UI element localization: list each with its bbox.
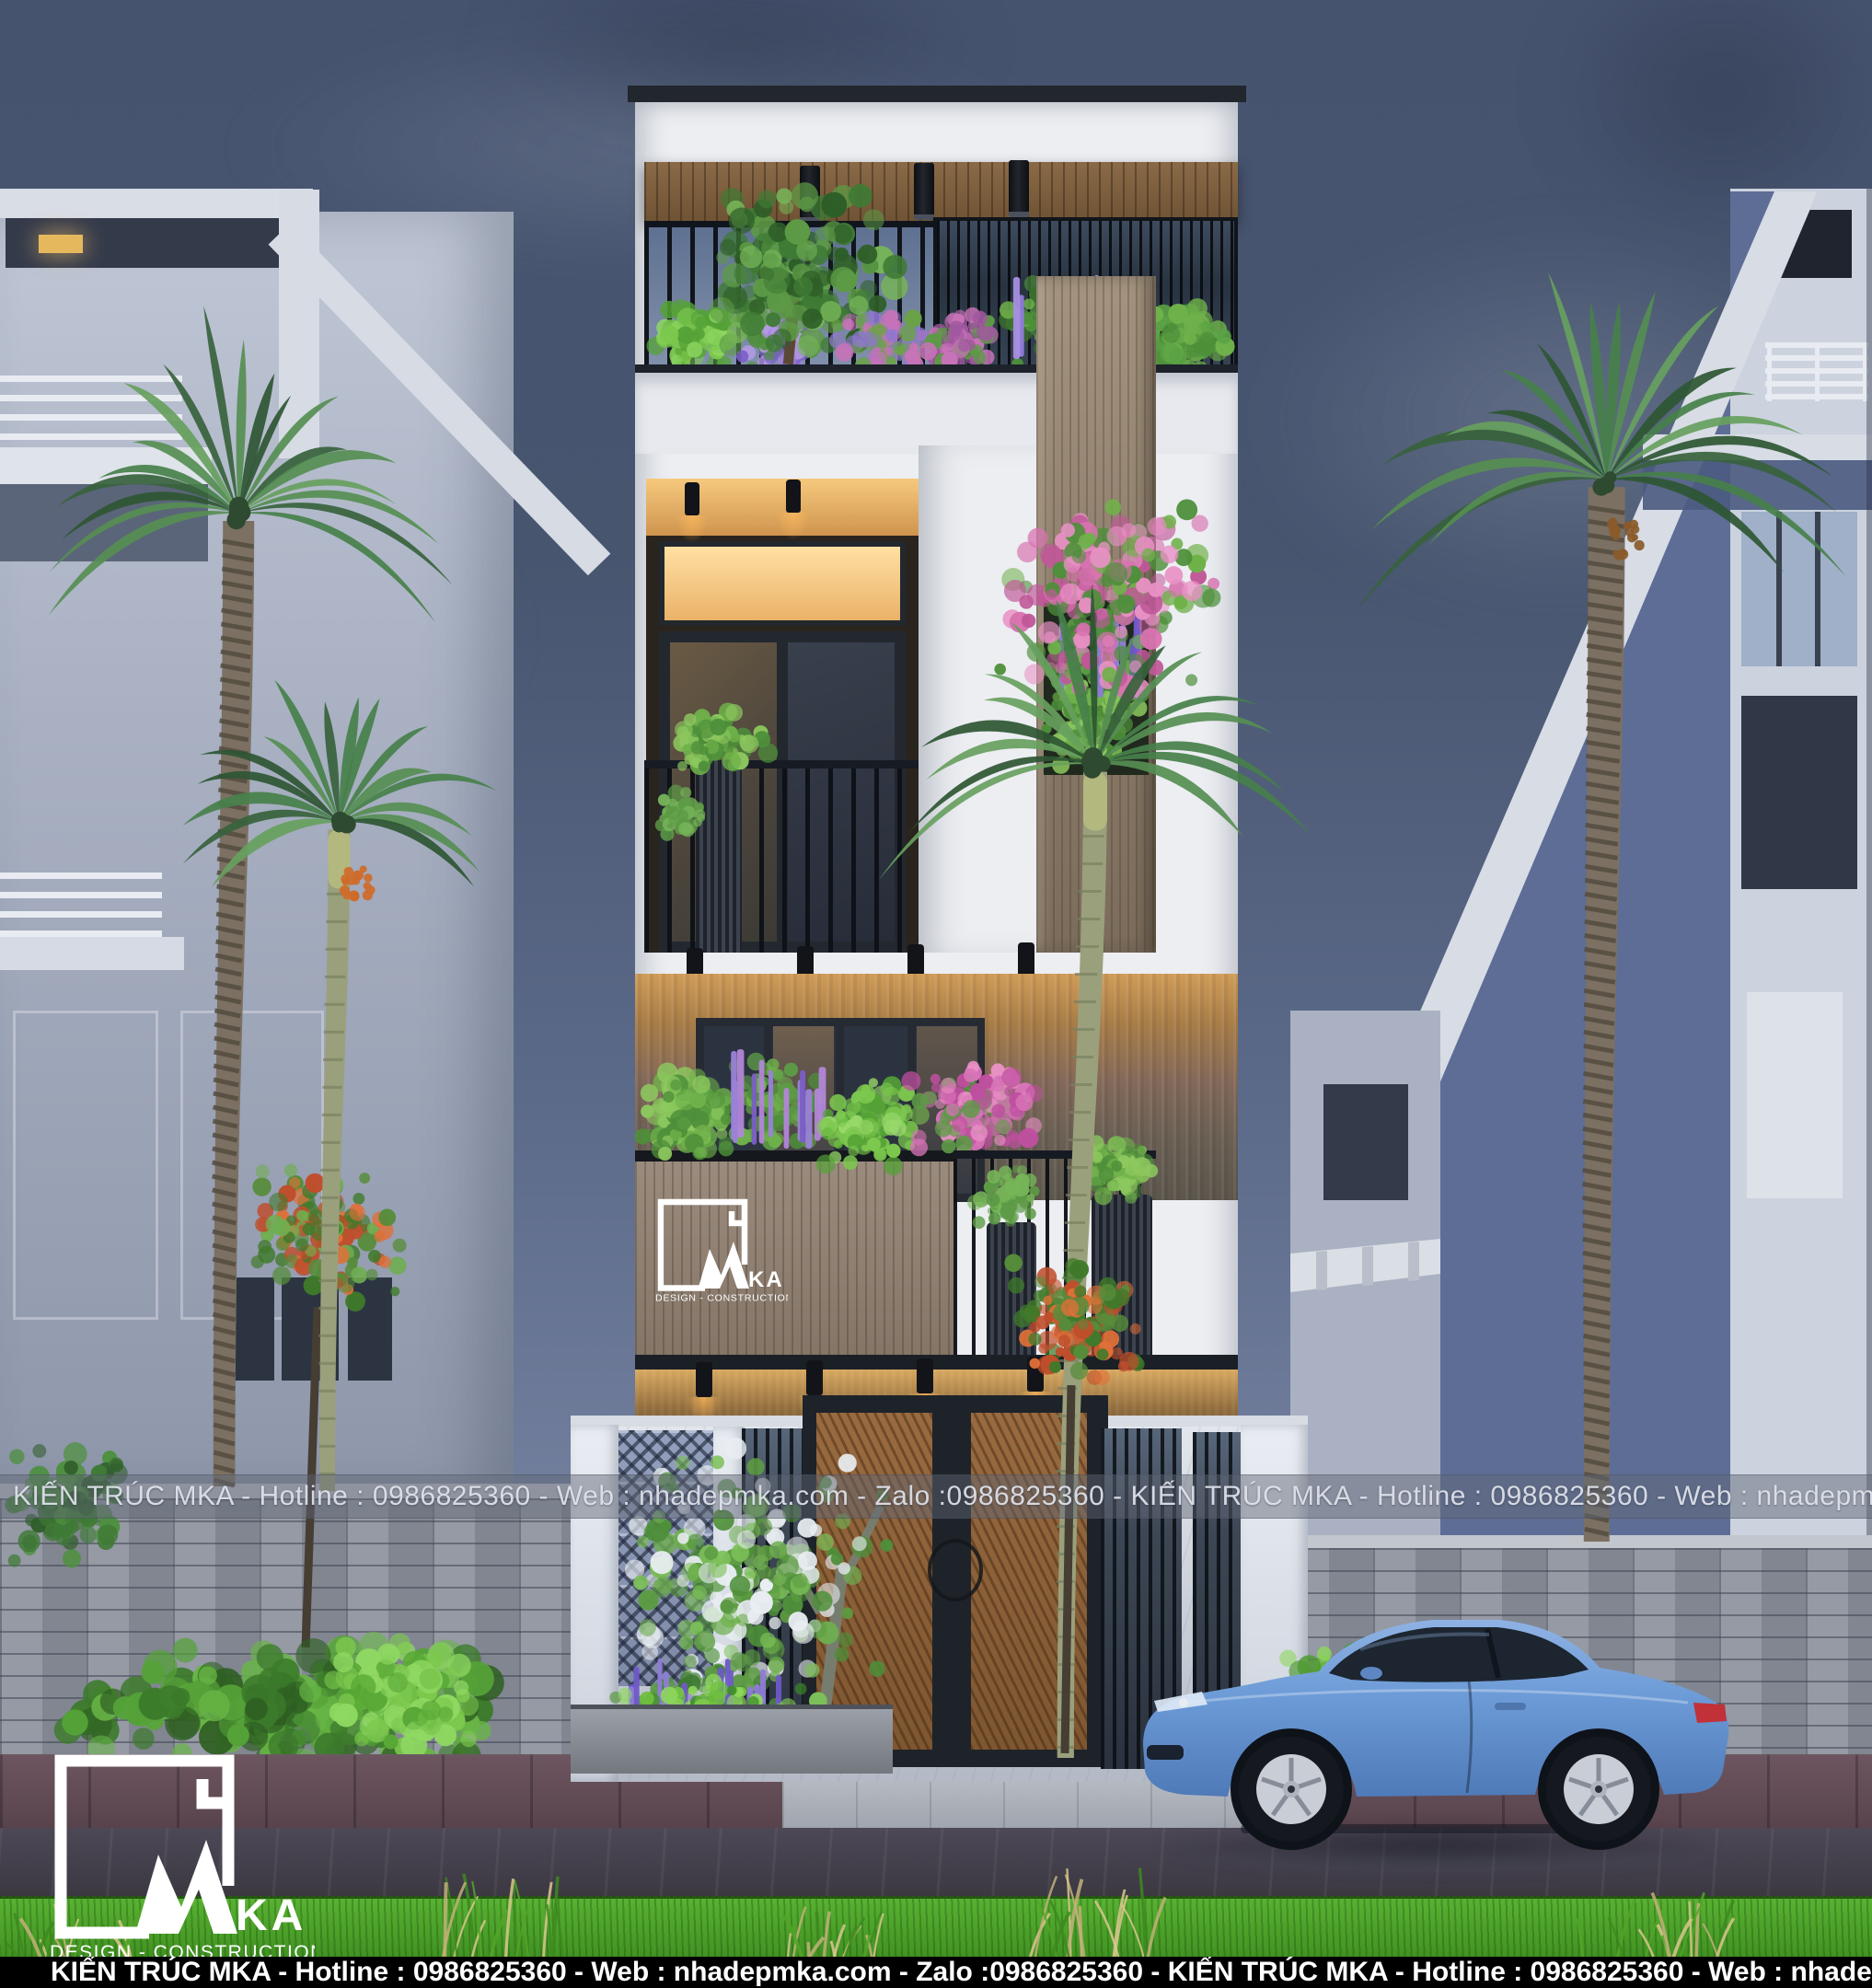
car-door-handle <box>1495 1703 1526 1710</box>
logo-letters: KA <box>236 1891 306 1940</box>
perimeter-wall-right-coping <box>1287 1535 1872 1548</box>
logo-m-mark <box>135 1840 237 1934</box>
facade-logo-banner: KA DESIGN - CONSTRUCTION <box>650 1195 788 1304</box>
downlight <box>806 1360 823 1395</box>
downlight <box>786 480 801 513</box>
car-roundel <box>1179 1698 1188 1707</box>
terrace-timber-soffit <box>644 162 1238 221</box>
watermark-band: KIẾN TRÚC MKA - Hotline : 0986825360 - W… <box>0 1474 1872 1519</box>
ceiling-light <box>39 235 83 253</box>
logo-letters: KA <box>748 1267 784 1292</box>
right-neighbour-lower-window <box>1323 1084 1408 1200</box>
main-roof-coping <box>628 86 1246 102</box>
fluted-planter <box>987 1222 1036 1357</box>
car-taillight <box>1693 1703 1727 1723</box>
third-floor-wall <box>919 445 1036 953</box>
fluted-planter <box>1092 1195 1152 1357</box>
left-neighbour-window <box>282 1277 339 1381</box>
watermark-text: KIẾN TRÚC MKA - Hotline : 0986825360 - W… <box>13 1481 1872 1511</box>
right-neighbour-beam-shadow <box>1643 460 1872 510</box>
slab-edge <box>635 1355 1238 1370</box>
blue-coupe-car <box>1130 1565 1747 1868</box>
logo-m-mark <box>699 1242 750 1289</box>
left-neighbour-railing-upper <box>0 376 182 447</box>
downlight <box>685 482 699 515</box>
column-planter-recess <box>1044 600 1149 775</box>
left-neighbour-fascia-2 <box>0 937 184 970</box>
footer-logo: KA DESIGN - CONSTRUCTION <box>39 1745 315 1966</box>
left-neighbour-recess <box>0 484 208 561</box>
logo-tagline: DESIGN - CONSTRUCTION <box>655 1293 788 1304</box>
car-front-wheel <box>1231 1728 1352 1850</box>
stone-planter-box <box>571 1705 893 1774</box>
gate-handle-ring <box>928 1539 983 1601</box>
car-front-intake <box>1147 1745 1184 1760</box>
balcony-railing-top <box>953 1150 1156 1159</box>
downlight <box>696 1362 712 1397</box>
right-neighbour-beam <box>1643 434 1872 460</box>
footer-contact-text: KIẾN TRÚC MKA - Hotline : 0986825360 - W… <box>51 1957 1872 1987</box>
left-neighbour-railing-lower <box>0 873 162 937</box>
car-rear-wheel <box>1538 1728 1659 1850</box>
downlight <box>1027 1357 1044 1392</box>
balcony-railing-bars <box>644 769 922 953</box>
car-side-mirror <box>1360 1667 1382 1680</box>
architectural-render-scene: KA DESIGN - CONSTRUCTION <box>0 0 1872 1988</box>
left-neighbour-window <box>217 1277 274 1381</box>
left-neighbour-roof-slab <box>0 189 313 218</box>
footer-contact-bar: KIẾN TRÚC MKA - Hotline : 0986825360 - W… <box>0 1957 1872 1988</box>
tall-planter-pot <box>696 760 742 953</box>
downlight <box>917 1358 933 1393</box>
perimeter-wall-left <box>0 1498 596 1780</box>
right-neighbour-window <box>1741 696 1857 889</box>
right-neighbour-door <box>1747 992 1843 1198</box>
left-neighbour-wall-panel <box>180 1011 324 1320</box>
balcony-railing-top <box>644 760 922 769</box>
right-neighbour-window <box>1741 512 1857 666</box>
pendant-light <box>800 166 820 223</box>
left-neighbour-wall-panel <box>13 1011 158 1320</box>
pendant-light <box>914 163 934 220</box>
left-neighbour-fascia <box>0 447 212 484</box>
breeze-block-screen <box>618 1430 718 1686</box>
balcony-transom-window <box>659 541 906 626</box>
right-neighbour-building <box>1270 184 1872 1555</box>
pendant-light <box>1009 160 1029 217</box>
left-neighbour-window <box>348 1277 392 1381</box>
